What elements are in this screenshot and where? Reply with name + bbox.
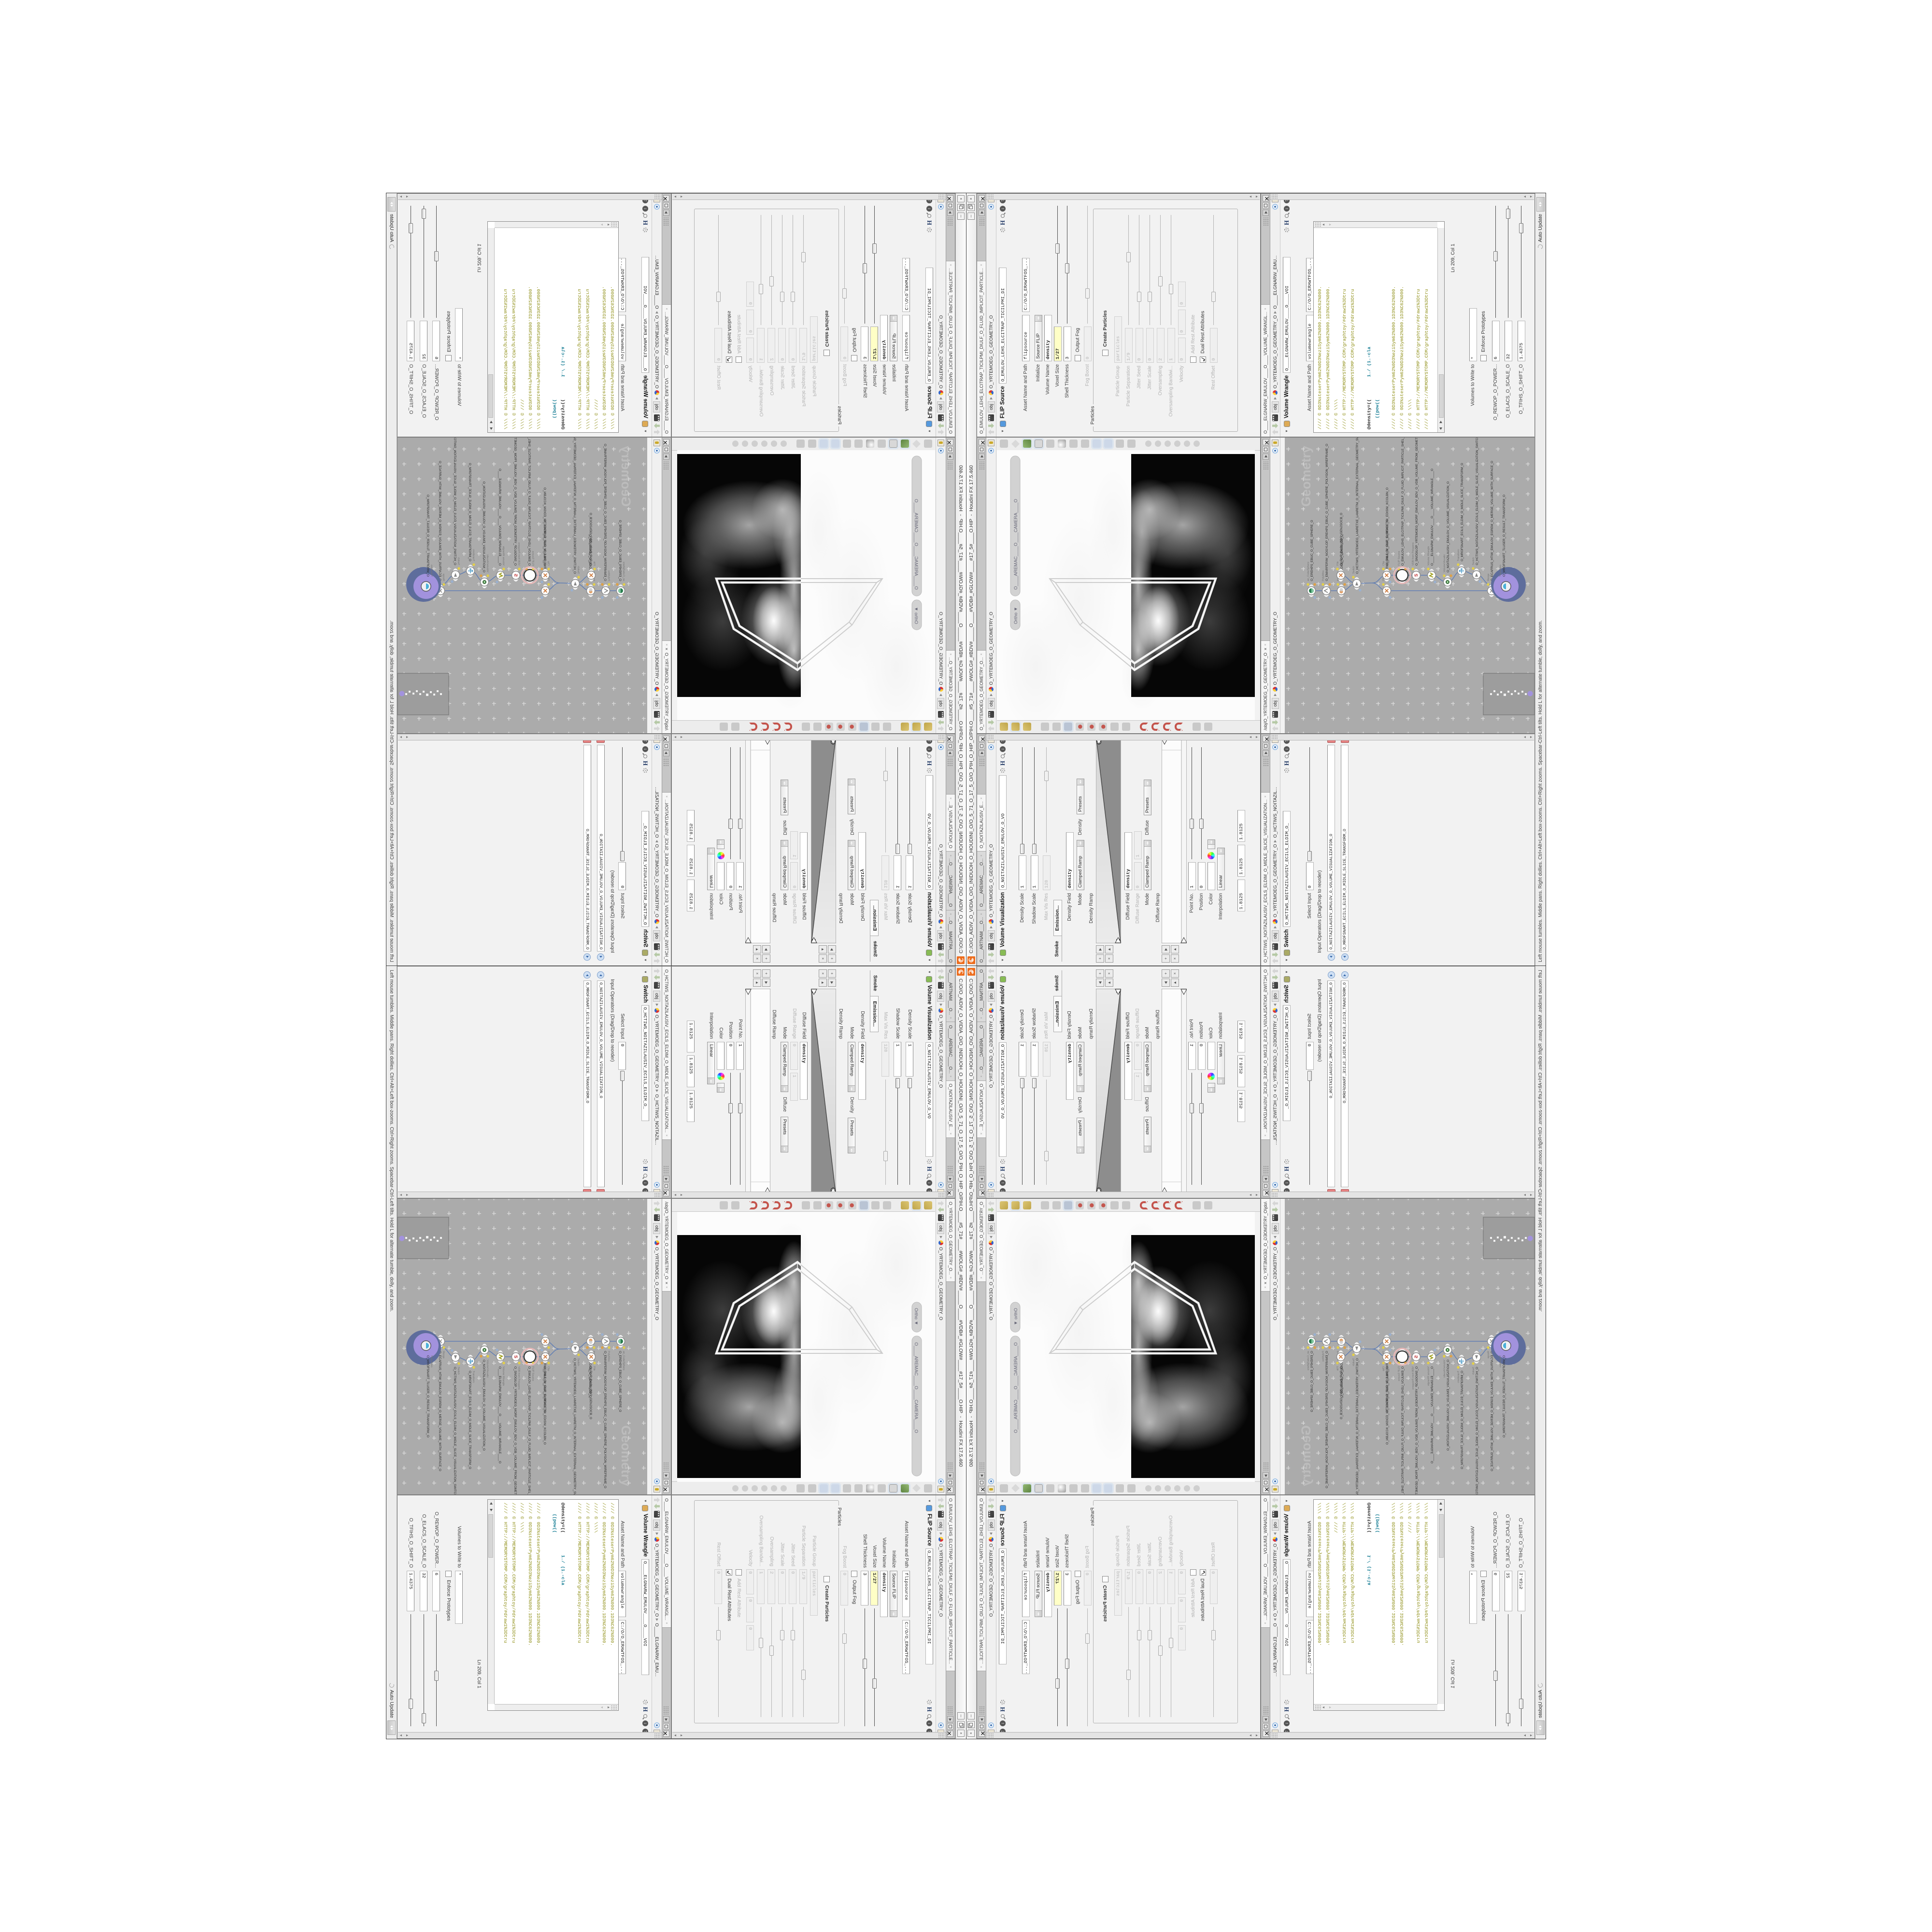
svg-text:Merge: Merge	[1487, 573, 1490, 581]
svg-text:Merge: Merge	[442, 1351, 445, 1359]
svg-text:an_CubeSphere: an_CubeSphere	[622, 1351, 625, 1370]
svg-text:Clip: Clip	[547, 1366, 550, 1371]
svg-text:Merge: Merge	[442, 573, 445, 581]
svg-text:O_NOITAZILAUSIV_EMULOV_O_VOLUM: O_NOITAZILAUSIV_EMULOV_O_VOLUME_VISUALIZ…	[1447, 482, 1450, 572]
svg-text:Transform: Transform	[430, 565, 433, 577]
svg-text:VolumeVisualiz: VolumeVisualiz	[1443, 1360, 1446, 1378]
svg-text:O_ECAFRUS_HTIW_EMULOV_EGREM_O_: O_ECAFRUS_HTIW_EMULOV_EGREM_O_MERGE_VOLU…	[438, 461, 441, 581]
svg-text:PolyWire: PolyWire	[1322, 570, 1325, 581]
svg-text:Ortho ▼: Ortho ▼	[1013, 1308, 1019, 1325]
svg-text:O_EMULOV_PILC_O_ROIRETNI_EDISN: O_EMULOV_PILC_O_ROIRETNI_EDISNI_KCOLBN_O	[1386, 487, 1389, 566]
svg-text:an_CubeSphere: an_CubeSphere	[1307, 1351, 1310, 1370]
svg-text:O_HCTIWS_YRTEMOEG_LANRETXE_LAN: O_HCTIWS_YRTEMOEG_LANRETXE_LANRETNI_O_IN…	[573, 438, 576, 574]
svg-text:PolyWire: PolyWire	[607, 1351, 610, 1362]
svg-text:FLIP Source: FLIP Source	[1398, 1366, 1401, 1381]
svg-text:Ortho ▼: Ortho ▼	[913, 1308, 919, 1325]
svg-text:O_EREHPS_EBUC_O_CUBE_SPHERE_O: O_EREHPS_EBUC_O_CUBE_SPHERE_O	[1310, 1351, 1314, 1412]
svg-text:Transform: Transform	[472, 549, 475, 561]
svg-text:O____AREMAC____O____CAMERA____: O____AREMAC____O____CAMERA____O	[913, 499, 919, 590]
svg-text:O_MROFSNART_ECILS_ELDIM_O_MIDL: O_MROFSNART_ECILS_ELDIM_O_MIDLE_SLICE_TR…	[468, 1371, 471, 1469]
svg-text:O_ELIF_DAOL_BDO_GENJSOCB_O: O_ELIF_DAOL_BDO_GENJSOCB_O	[1340, 513, 1343, 566]
svg-text:VolumeVisualiz: VolumeVisualiz	[486, 554, 489, 572]
svg-text:Merge: Merge	[1487, 1351, 1490, 1359]
svg-text:O_HCTIWS_NOITAZILAUSIV_ECILS_E: O_HCTIWS_NOITAZILAUSIV_ECILS_ELDIM_O_MID…	[1476, 438, 1479, 565]
svg-text:O____AREMAC____O____CAMERA____: O____AREMAC____O____CAMERA____O	[1013, 1342, 1019, 1433]
svg-text:Switch: Switch	[577, 1358, 580, 1366]
svg-text:an_CubeSphere: an_CubeSphere	[1307, 562, 1310, 581]
svg-text:O____ELGNARW_EMULOV____O____VO: O____ELGNARW_EMULOV____O____VOLUME_WRANG…	[498, 1366, 501, 1463]
svg-text:FLIP Source: FLIP Source	[531, 551, 534, 566]
svg-text:O_HCTIWS_NOITAZILAUSIV_ECILS_E: O_HCTIWS_NOITAZILAUSIV_ECILS_ELDIM_O_MID…	[453, 1367, 456, 1494]
svg-text:Switch: Switch	[457, 1367, 460, 1375]
svg-text:S: S	[513, 1355, 518, 1358]
svg-text:Switch: Switch	[1352, 566, 1355, 574]
svg-text:S: S	[1414, 1355, 1419, 1358]
svg-text:O____ELGNARW_EMULOV____O____VO: O____ELGNARW_EMULOV____O____VOLUME_WRANG…	[1431, 469, 1434, 566]
svg-text:Transform: Transform	[1457, 1371, 1460, 1383]
svg-text:Clip: Clip	[1382, 561, 1385, 566]
svg-text:PolyWire: PolyWire	[607, 570, 610, 581]
svg-text:S: S	[1414, 574, 1419, 577]
svg-text:Transform: Transform	[1499, 1355, 1502, 1367]
svg-text:O_SNOGILOP_YRTEMOEG_MORF_EMULO: O_SNOGILOP_YRTEMOEG_MORF_EMULOV_BDV_O_VD…	[1415, 1366, 1419, 1494]
svg-text:Switch: Switch	[1472, 1367, 1475, 1375]
svg-text:File: File	[593, 1366, 596, 1371]
svg-text:Clip: Clip	[547, 561, 550, 566]
svg-text:Transform: Transform	[430, 1355, 433, 1367]
svg-text:O____AREMAC____O____CAMERA____: O____AREMAC____O____CAMERA____O	[1013, 499, 1019, 590]
svg-text:Transform: Transform	[1499, 565, 1502, 577]
svg-text:Volume Wrangle: Volume Wrangle	[1427, 546, 1430, 566]
svg-text:Switch: Switch	[577, 566, 580, 574]
svg-text:O_SNOGILOP_YRTEMOEG_MORF_EMULO: O_SNOGILOP_YRTEMOEG_MORF_EMULOV_BDV_O_VD…	[513, 1366, 517, 1494]
svg-text:Transform: Transform	[472, 1371, 475, 1383]
svg-text:VDB from Polygons: VDB from Polygons	[517, 542, 520, 566]
svg-text:O_HCTIWS_NOITAZILAUSIV_ECILS_E: O_HCTIWS_NOITAZILAUSIV_ECILS_ELDIM_O_MID…	[453, 438, 456, 565]
svg-text:O_EMULOV_LEHS_ELCITRAP_TICILPM: O_EMULOV_LEHS_ELCITRAP_TICILPMI_DIULF_O_…	[527, 1366, 531, 1494]
svg-text:VolumeVisualiz: VolumeVisualiz	[1443, 554, 1446, 572]
svg-text:File: File	[593, 561, 596, 566]
svg-text:O_EMULOV_LEHS_ELCITRAP_TICILPM: O_EMULOV_LEHS_ELCITRAP_TICILPMI_DIULF_O_…	[1401, 438, 1405, 566]
svg-text:O_NOITAZILAUSIV_EMULOV_O_VOLUM: O_NOITAZILAUSIV_EMULOV_O_VOLUME_VISUALIZ…	[482, 482, 485, 572]
svg-text:O____ELGNARW_EMULOV____O____VO: O____ELGNARW_EMULOV____O____VOLUME_WRANG…	[1431, 1366, 1434, 1463]
svg-text:O____ELGNARW_EMULOV____O____VO: O____ELGNARW_EMULOV____O____VOLUME_WRANG…	[498, 469, 501, 566]
svg-text:File: File	[1336, 1366, 1339, 1371]
svg-text:O_HCTIWS_YRTEMOEG_LANRETXE_LAN: O_HCTIWS_YRTEMOEG_LANRETXE_LANRETNI_O_IN…	[1356, 1358, 1359, 1494]
svg-text:O_EMULOV_LEHS_ELCITRAP_TICILPM: O_EMULOV_LEHS_ELCITRAP_TICILPMI_DIULF_O_…	[527, 438, 531, 566]
svg-text:Switch: Switch	[1472, 557, 1475, 565]
svg-text:O_NOITAZILAUSIV_EMULOV_O_VOLUM: O_NOITAZILAUSIV_EMULOV_O_VOLUME_VISUALIZ…	[482, 1360, 485, 1450]
svg-text:S: S	[513, 574, 518, 577]
svg-text:O_ECAFRUS_HTIW_EMULOV_EGREM_O_: O_ECAFRUS_HTIW_EMULOV_EGREM_O_MERGE_VOLU…	[438, 1351, 441, 1471]
svg-text:O_HCTIWS_NOITAZILAUSIV_ECILS_E: O_HCTIWS_NOITAZILAUSIV_ECILS_ELDIM_O_MID…	[1476, 1367, 1479, 1494]
svg-text:Geometry: Geometry	[619, 446, 633, 507]
svg-text:Volume Wrangle: Volume Wrangle	[502, 1366, 505, 1386]
svg-text:O_EMULOV_PILC_O_ROIRETNI_EDISN: O_EMULOV_PILC_O_ROIRETNI_EDISNI_KCOLBN_O	[543, 487, 546, 566]
svg-text:FLIP Source: FLIP Source	[531, 1366, 534, 1381]
svg-text:VolumeVisualiz: VolumeVisualiz	[486, 1360, 489, 1378]
svg-text:O_HCTIWS_YRTEMOEG_LANRETXE_LAN: O_HCTIWS_YRTEMOEG_LANRETXE_LANRETNI_O_IN…	[573, 1358, 576, 1494]
svg-text:O_EREHPS_EBUC_O_CUBE_SPHERE_O: O_EREHPS_EBUC_O_CUBE_SPHERE_O	[618, 520, 622, 581]
svg-text:Geometry: Geometry	[1299, 446, 1313, 507]
svg-text:O_EMARFERIW_NOGYLOP_EREHPS_EBU: O_EMARFERIW_NOGYLOP_EREHPS_EBUC_O_CUBE_S…	[603, 444, 607, 581]
svg-text:O_SNOGILOP_YRTEMOEG_MORF_EMULO: O_SNOGILOP_YRTEMOEG_MORF_EMULOV_BDV_O_VD…	[513, 438, 517, 566]
svg-text:O_MROFSNART_ECILS_ELDIM_O_MIDL: O_MROFSNART_ECILS_ELDIM_O_MIDLE_SLICE_TR…	[1461, 1371, 1464, 1469]
svg-text:O_MROFSNART_TLUSER_O_RESULT_TR: O_MROFSNART_TLUSER_O_RESULT_TRANSFORM_O	[1503, 495, 1506, 577]
svg-text:O_ELIF_DAOL_BDO_GENJSOCB_O: O_ELIF_DAOL_BDO_GENJSOCB_O	[1340, 1366, 1343, 1419]
svg-text:O_EMULOV_LEHS_ELCITRAP_TICILPM: O_EMULOV_LEHS_ELCITRAP_TICILPMI_DIULF_O_…	[1401, 1366, 1405, 1494]
svg-text:O_ECAFRUS_HTIW_EMULOV_EGREM_O_: O_ECAFRUS_HTIW_EMULOV_EGREM_O_MERGE_VOLU…	[1491, 461, 1494, 581]
svg-text:VDB from Polygons: VDB from Polygons	[1412, 542, 1415, 566]
svg-text:Geometry: Geometry	[1299, 1425, 1313, 1486]
svg-text:O_EMARFERIW_NOGYLOP_EREHPS_EBU: O_EMARFERIW_NOGYLOP_EREHPS_EBUC_O_CUBE_S…	[1325, 1351, 1329, 1488]
svg-text:FLIP Source: FLIP Source	[1398, 551, 1401, 566]
svg-text:Clip: Clip	[1382, 1366, 1385, 1371]
svg-text:O_NOITAZILAUSIV_EMULOV_O_VOLUM: O_NOITAZILAUSIV_EMULOV_O_VOLUME_VISUALIZ…	[1447, 1360, 1450, 1450]
svg-text:Geometry: Geometry	[619, 1425, 633, 1486]
svg-text:O_MROFSNART_TLUSER_O_RESULT_TR: O_MROFSNART_TLUSER_O_RESULT_TRANSFORM_O	[426, 1355, 429, 1437]
svg-text:Ortho ▼: Ortho ▼	[1013, 607, 1019, 624]
svg-text:O_MROFSNART_TLUSER_O_RESULT_TR: O_MROFSNART_TLUSER_O_RESULT_TRANSFORM_O	[1503, 1355, 1506, 1437]
svg-text:File: File	[1336, 561, 1339, 566]
svg-text:O_EREHPS_EBUC_O_CUBE_SPHERE_O: O_EREHPS_EBUC_O_CUBE_SPHERE_O	[618, 1351, 622, 1412]
svg-text:Switch: Switch	[457, 557, 460, 565]
svg-text:O_MROFSNART_TLUSER_O_RESULT_TR: O_MROFSNART_TLUSER_O_RESULT_TRANSFORM_O	[426, 495, 429, 577]
svg-text:PolyWire: PolyWire	[1322, 1351, 1325, 1362]
svg-text:Volume Wrangle: Volume Wrangle	[502, 546, 505, 566]
svg-text:O_EMARFERIW_NOGYLOP_EREHPS_EBU: O_EMARFERIW_NOGYLOP_EREHPS_EBUC_O_CUBE_S…	[1325, 444, 1329, 581]
svg-text:O_MROFSNART_ECILS_ELDIM_O_MIDL: O_MROFSNART_ECILS_ELDIM_O_MIDLE_SLICE_TR…	[468, 463, 471, 561]
svg-text:Volume Wrangle: Volume Wrangle	[1427, 1366, 1430, 1386]
svg-text:Transform: Transform	[1457, 549, 1460, 561]
svg-text:O_HCTIWS_YRTEMOEG_LANRETXE_LAN: O_HCTIWS_YRTEMOEG_LANRETXE_LANRETNI_O_IN…	[1356, 438, 1359, 574]
svg-text:VDB from Polygons: VDB from Polygons	[1412, 1366, 1415, 1390]
svg-text:O_EMULOV_PILC_O_ROIRETNI_EDISN: O_EMULOV_PILC_O_ROIRETNI_EDISNI_KCOLBN_O	[1386, 1366, 1389, 1445]
svg-text:O____AREMAC____O____CAMERA____: O____AREMAC____O____CAMERA____O	[913, 1342, 919, 1433]
svg-text:O_EMARFERIW_NOGYLOP_EREHPS_EBU: O_EMARFERIW_NOGYLOP_EREHPS_EBUC_O_CUBE_S…	[603, 1351, 607, 1488]
svg-text:Switch: Switch	[1352, 1358, 1355, 1366]
svg-text:O_ELIF_DAOL_BDO_GENJSOCB_O: O_ELIF_DAOL_BDO_GENJSOCB_O	[589, 1366, 592, 1419]
svg-text:O_EMULOV_PILC_O_ROIRETNI_EDISN: O_EMULOV_PILC_O_ROIRETNI_EDISNI_KCOLBN_O	[543, 1366, 546, 1445]
svg-text:an_CubeSphere: an_CubeSphere	[622, 562, 625, 581]
svg-text:O_MROFSNART_ECILS_ELDIM_O_MIDL: O_MROFSNART_ECILS_ELDIM_O_MIDLE_SLICE_TR…	[1461, 463, 1464, 561]
svg-text:Ortho ▼: Ortho ▼	[913, 607, 919, 624]
svg-text:O_SNOGILOP_YRTEMOEG_MORF_EMULO: O_SNOGILOP_YRTEMOEG_MORF_EMULOV_BDV_O_VD…	[1415, 438, 1419, 566]
svg-text:O_ECAFRUS_HTIW_EMULOV_EGREM_O_: O_ECAFRUS_HTIW_EMULOV_EGREM_O_MERGE_VOLU…	[1491, 1351, 1494, 1471]
svg-text:VDB from Polygons: VDB from Polygons	[517, 1366, 520, 1390]
svg-text:O_EREHPS_EBUC_O_CUBE_SPHERE_O: O_EREHPS_EBUC_O_CUBE_SPHERE_O	[1310, 520, 1314, 581]
svg-text:O_ELIF_DAOL_BDO_GENJSOCB_O: O_ELIF_DAOL_BDO_GENJSOCB_O	[589, 513, 592, 566]
